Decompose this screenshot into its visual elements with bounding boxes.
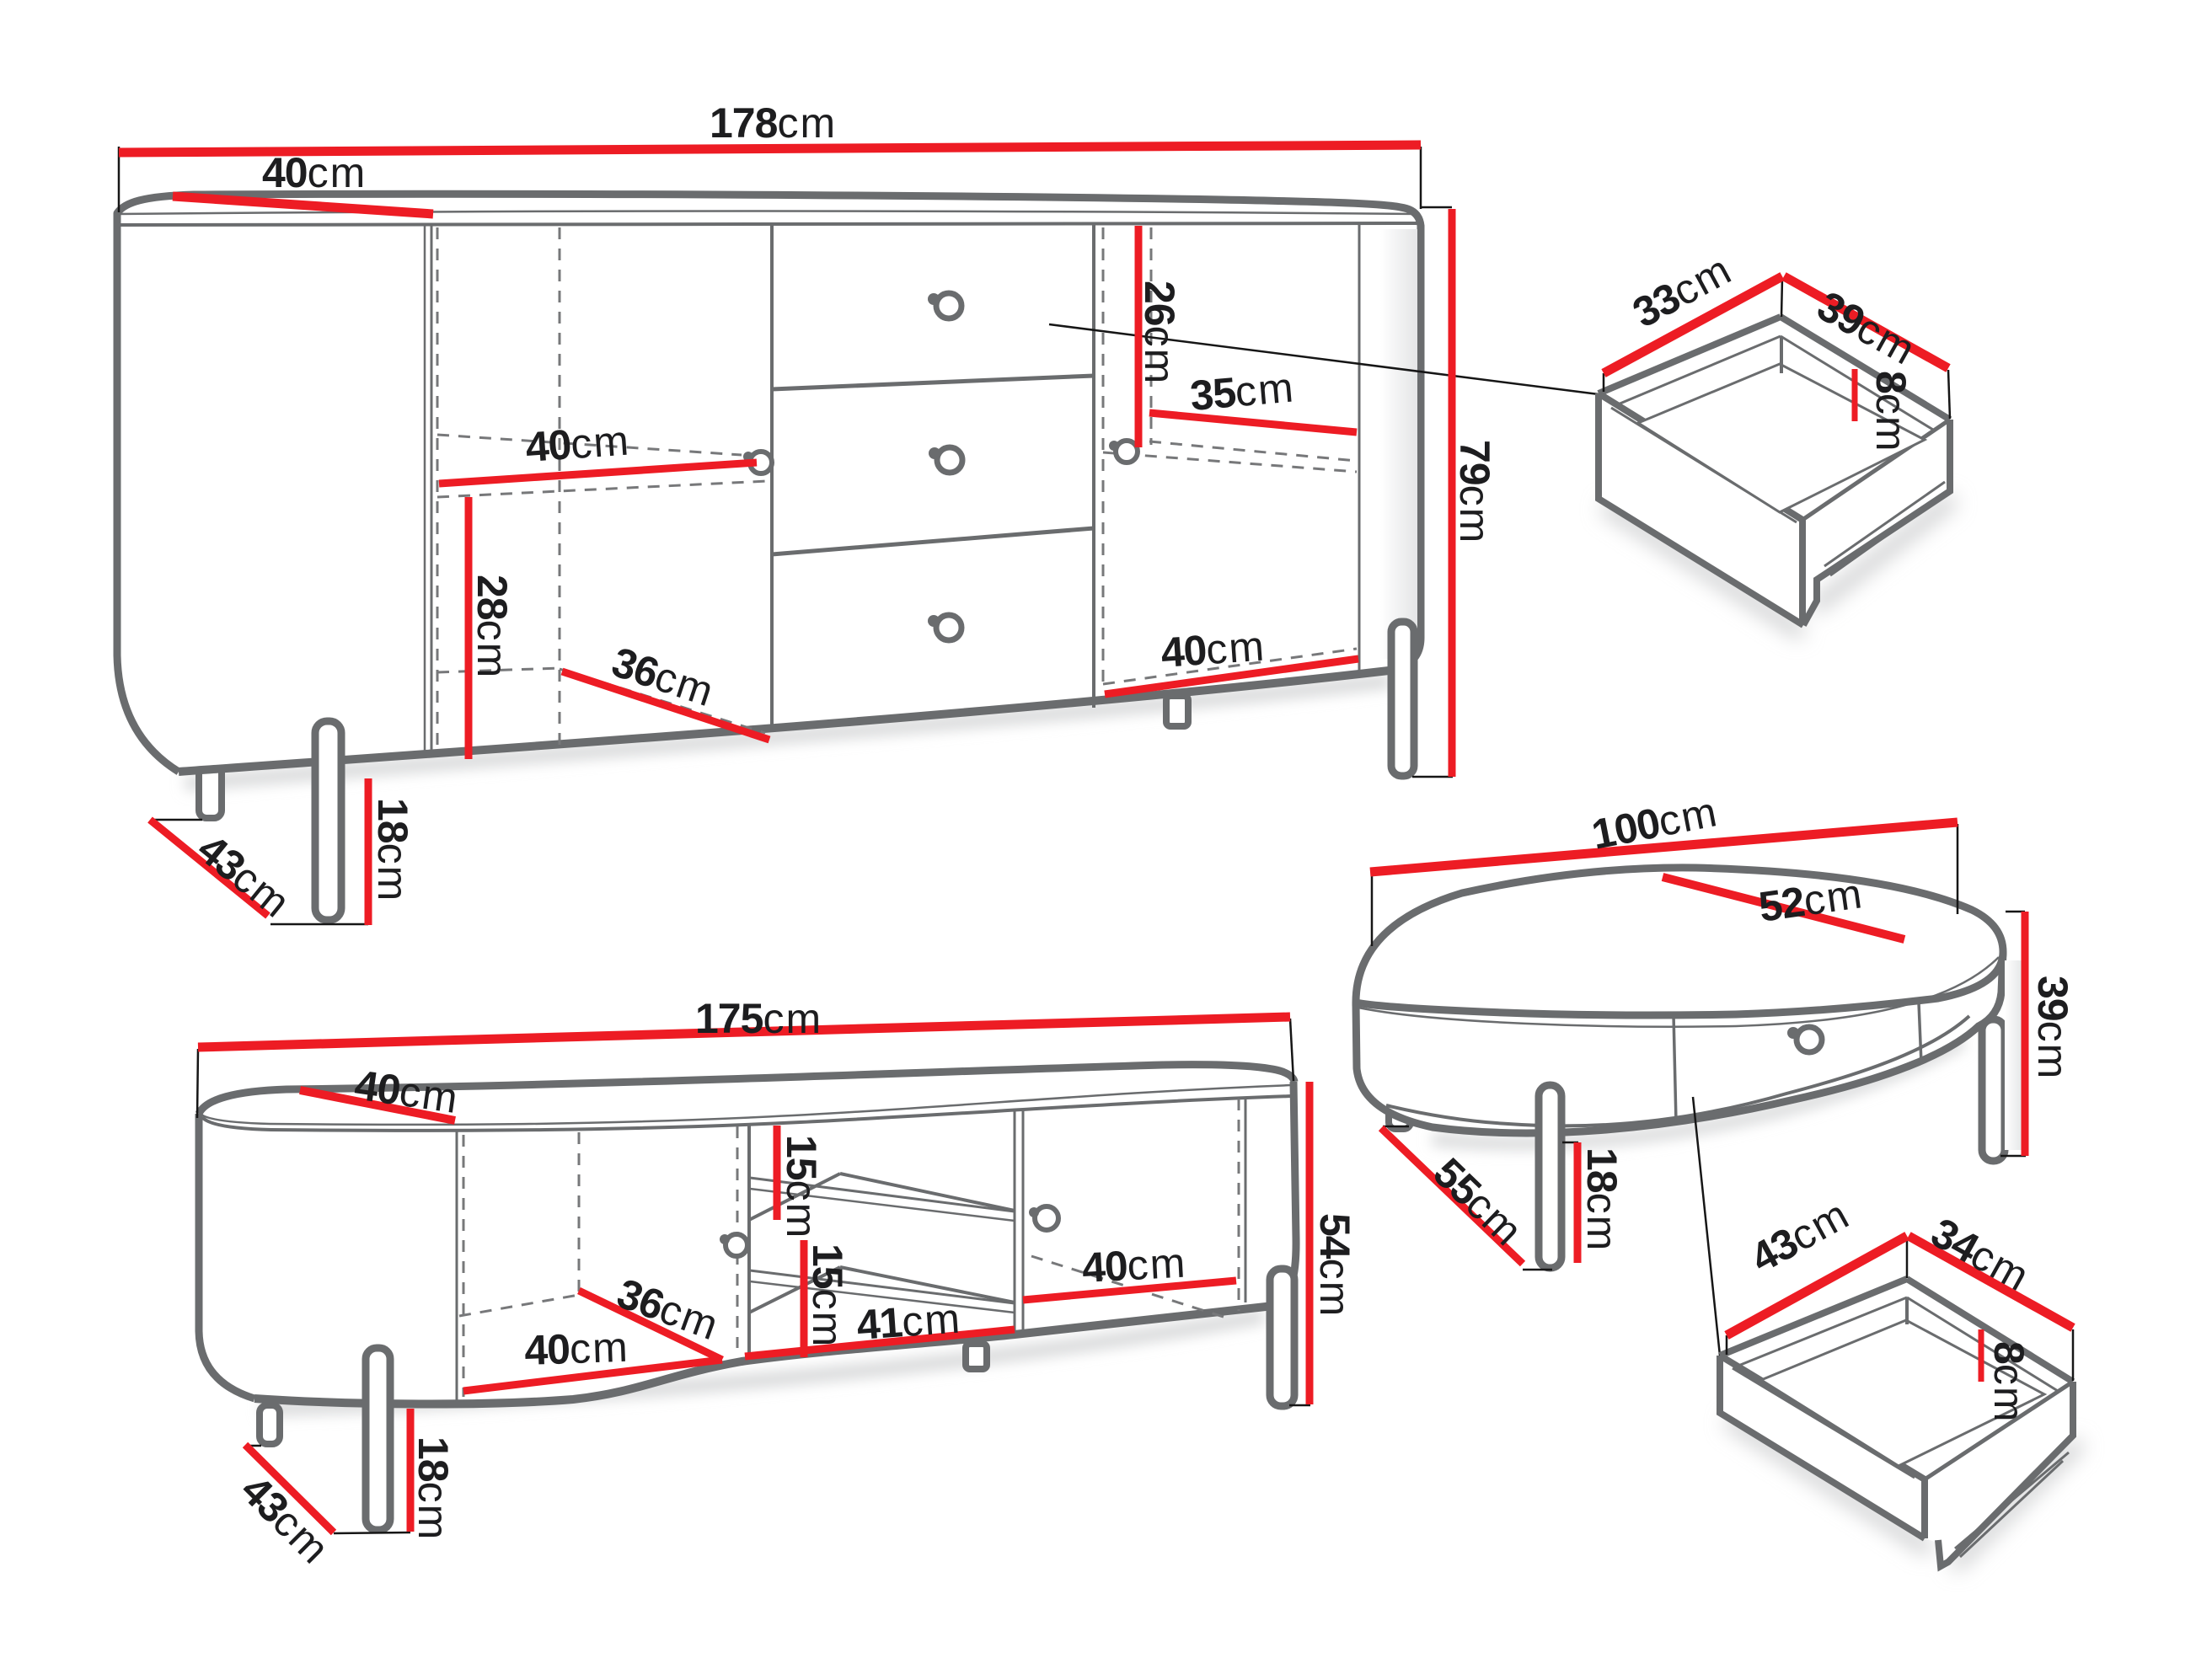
svg-text:8cm: 8cm xyxy=(1985,1341,2033,1423)
svg-text:40cm: 40cm xyxy=(262,149,367,196)
svg-text:18cm: 18cm xyxy=(410,1436,457,1541)
svg-text:40cm: 40cm xyxy=(1160,622,1267,677)
svg-text:26cm: 26cm xyxy=(1136,281,1183,385)
svg-text:54cm: 54cm xyxy=(1311,1213,1358,1318)
svg-text:40cm: 40cm xyxy=(1081,1239,1188,1292)
svg-text:41cm: 41cm xyxy=(855,1294,963,1349)
svg-text:40cm: 40cm xyxy=(524,416,632,471)
svg-text:15cm: 15cm xyxy=(778,1135,825,1239)
svg-text:39cm: 39cm xyxy=(2029,976,2076,1080)
svg-text:8cm: 8cm xyxy=(1867,371,1915,452)
svg-text:18cm: 18cm xyxy=(369,798,416,902)
svg-text:35cm: 35cm xyxy=(1188,363,1297,420)
svg-text:15cm: 15cm xyxy=(804,1243,851,1348)
svg-text:178cm: 178cm xyxy=(710,99,837,147)
svg-text:79cm: 79cm xyxy=(1451,440,1498,544)
svg-text:18cm: 18cm xyxy=(1578,1147,1626,1252)
svg-text:40cm: 40cm xyxy=(523,1324,629,1374)
svg-text:175cm: 175cm xyxy=(695,995,822,1042)
svg-text:28cm: 28cm xyxy=(469,575,516,679)
